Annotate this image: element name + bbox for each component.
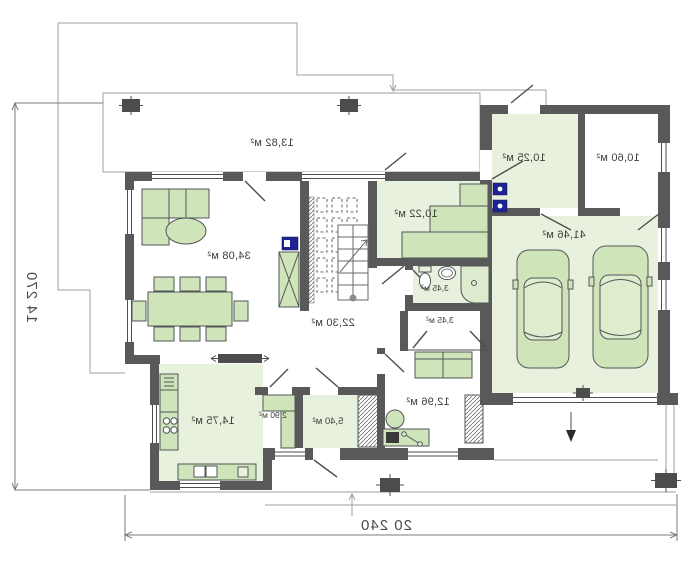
meter-box (493, 183, 507, 195)
room-label-wardrobe: 10,22 м² (394, 208, 438, 220)
window (408, 448, 458, 460)
room-label-office: 12,96 м² (406, 396, 450, 408)
fireplace (279, 252, 299, 307)
room-label-closet: 3,45 м² (426, 315, 454, 325)
window (658, 143, 670, 172)
hob-small (238, 467, 248, 477)
meter-box (493, 200, 507, 212)
dimension-label-width: 20 240 (360, 517, 412, 534)
window (152, 172, 223, 181)
shower (461, 266, 489, 303)
window (125, 190, 134, 234)
window (658, 280, 670, 310)
kitchen-sink (194, 466, 217, 477)
window (180, 481, 220, 490)
car (589, 246, 652, 368)
office-table (386, 410, 404, 428)
room-label-pantry: 2,90 м² (259, 410, 287, 420)
room-label-kitchen: 14,75 м² (191, 415, 235, 427)
car (513, 250, 573, 368)
room-label-mudroom: 10,25 м² (502, 152, 546, 164)
kitchen-sliding-door (211, 354, 269, 363)
stove-box (282, 237, 298, 250)
dimension-label-height: 14 270 (23, 271, 40, 323)
room-label-terrace: 13,82 м² (250, 137, 294, 149)
stairs-lower-treads (338, 225, 368, 302)
room-label-living-room: 34,08 м² (207, 250, 251, 262)
wash-basin (439, 267, 456, 280)
office-desk (383, 429, 429, 446)
window (150, 405, 159, 443)
room-label-bathroom: 3,45 м² (421, 283, 449, 293)
coffee-table (166, 218, 206, 244)
window (275, 448, 305, 460)
built-in-wardrobe (358, 395, 378, 447)
built-in-wardrobe (465, 395, 483, 443)
room-label-garage: 41,46 м² (542, 229, 586, 241)
room-label-vestibule: 5,40 м² (313, 416, 344, 427)
room-label-utility-room: 10,60 м² (596, 152, 640, 164)
floor-plan: 13,82 м² 34,08 м² 10,22 м² 22,30 м² 3,45… (0, 0, 700, 575)
room-label-hall: 22,30 м² (311, 317, 355, 329)
window (658, 228, 670, 262)
closet-wardrobe (415, 352, 472, 378)
